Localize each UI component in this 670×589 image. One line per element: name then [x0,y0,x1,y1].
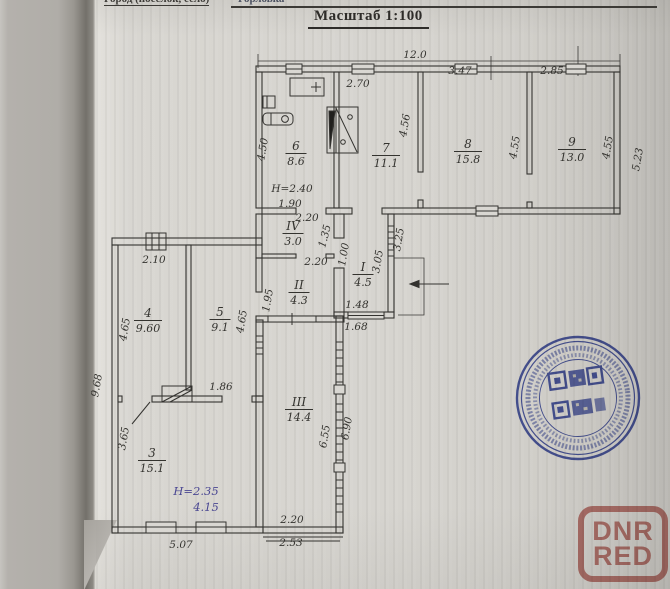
dnr-red-watermark: DNR RED [578,506,668,582]
room-number: IV [285,219,301,233]
room-area: 8.6 [287,155,305,168]
room-area: 14.4 [287,411,312,424]
dimension-label: 1.68 [344,321,368,333]
room-label: 711.1 [372,141,400,170]
stove-room3 [162,386,192,402]
room-area: 9.1 [211,321,229,334]
room-label: 59.1 [210,305,231,334]
dimension-label: 1.35 [316,223,334,249]
watermark-line2: RED [593,544,653,569]
chimney [146,233,166,250]
dimension-label: 2.20 [279,514,304,526]
room-number: III [291,395,306,409]
dimension-label: 5.23 [630,147,646,172]
scanned-document-page: Город (поселок, село) Горловка Масштаб 1… [0,0,670,589]
overall-dimension-line [258,46,620,80]
room-area: 15.1 [140,462,165,475]
room-label: III14.4 [285,395,313,424]
dimension-label: 3.05 [370,249,386,274]
room-area: 9.60 [136,322,161,335]
sink-fixture [263,96,275,108]
room-number: II [293,278,304,292]
room-label: 815.8 [454,137,482,166]
dimension-label: 9.68 [89,373,105,398]
entrance-porch [394,258,449,315]
room-number: 4 [143,306,152,320]
dimension-label: 4.15 [192,500,219,514]
dimension-label: H=2.35 [172,484,218,498]
dimension-label: 4.56 [397,113,413,139]
dimension-label: 4.55 [507,135,523,161]
dimension-label: 1.86 [209,381,233,393]
round-stamp [509,329,647,467]
dimension-labels: 12.02.703.472.854.504.564.554.555.23H=2.… [89,49,646,551]
dimension-label: H=2.40 [270,183,313,195]
room-area: 15.8 [456,153,481,166]
boiler-fixture [263,113,293,125]
room-area: 4.5 [353,276,372,289]
dimension-label: 2.10 [141,254,166,266]
kitchen-plate-fixture [290,78,324,96]
room-number: 5 [216,305,224,319]
dimension-label: 5.07 [169,539,193,551]
heating-stove [327,107,358,153]
dimension-label: 1.00 [336,242,352,267]
dimension-label: 4.65 [117,317,133,343]
dimension-label: 12.0 [403,49,427,61]
dimension-label: 4.65 [234,309,250,335]
room-number: 6 [292,139,300,153]
room-area: 4.3 [289,294,308,307]
room-label: II4.3 [289,278,310,307]
dimension-label: 2.53 [278,537,303,549]
room-label: I4.5 [353,260,374,289]
room-label: 913.0 [558,135,586,164]
dimension-label: 2.85 [539,65,564,77]
dimension-label: 4.50 [255,137,271,163]
room-label: 68.6 [286,139,307,168]
window-hatch-room5 [256,336,263,354]
room-number: 8 [464,137,472,151]
dimension-label: 6.90 [339,416,355,441]
room-number: 9 [568,135,576,149]
dimension-label: 2.70 [345,78,370,90]
dimension-label: 2.20 [303,256,328,268]
room-label: 49.60 [134,306,162,335]
dimension-label: 1.90 [278,198,302,210]
room-label: 315.1 [138,446,166,475]
dimension-label: 1.48 [345,299,369,311]
dimension-label: 6.55 [317,424,333,449]
room-area: 11.1 [374,157,399,170]
dimension-label: 3.47 [448,65,472,77]
floor-plan-drawing: 12.02.703.472.854.504.564.554.555.23H=2.… [0,0,670,589]
stamp-qr-codes [548,367,607,419]
room-area: 3.0 [284,235,302,248]
room-number: 3 [148,446,156,460]
room-number: 7 [382,141,390,155]
room-number: I [360,260,366,274]
door-leaf [132,402,150,424]
room-area: 13.0 [560,151,585,164]
